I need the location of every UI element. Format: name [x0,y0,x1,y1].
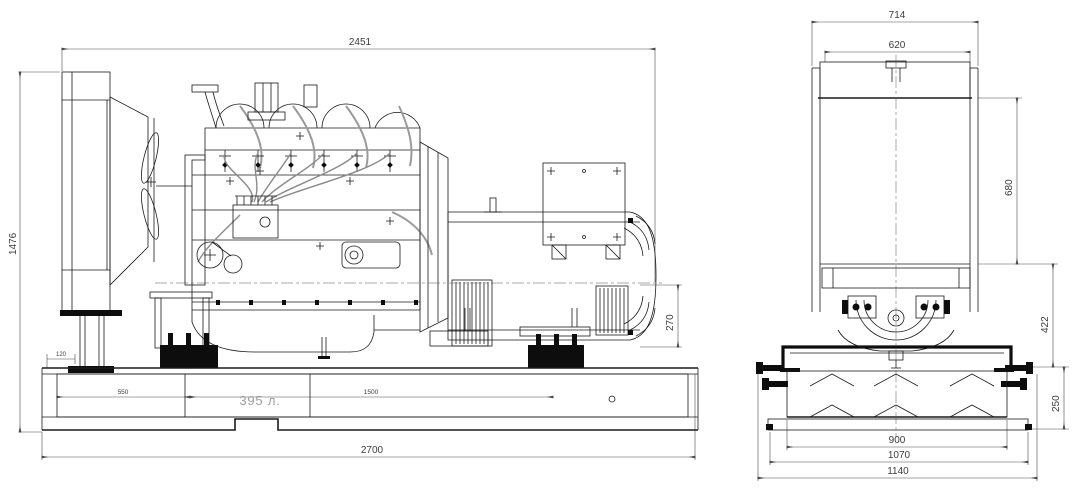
dim-rear-duct-height-label: 270 [665,314,676,331]
dim-core-height-label: 680 [1004,179,1015,196]
air-intake-stack [248,83,317,120]
alternator-mount [430,308,590,368]
tank-drain-port [609,396,615,402]
oil-pan [192,310,420,359]
lifting-lug [484,198,502,212]
injectors-row [219,150,396,172]
rear-air-scoops [624,216,655,336]
block-flange-bolts [216,300,418,305]
fuel-capacity-label: 395 л. [239,393,280,408]
radiator-foot-flange [60,310,122,316]
genset-dimension-drawing: 2451 1476 2700 270 120 550 1500 [0,0,1078,488]
exhaust-outlet-flange [192,85,218,92]
dim-tank-seg2-label: 1500 [364,389,379,396]
front-view: 714 620 680 422 250 900 1070 [756,10,1069,481]
side-view-dimensions: 2451 1476 2700 270 120 550 1500 [8,37,695,460]
dim-overall-length-label: 2451 [349,37,372,48]
front-vent-grille [452,280,492,346]
cooling-fan [138,118,192,262]
dim-base-width-label: 1140 [887,466,909,477]
base-bottom-edge [42,419,698,430]
terminal-box [543,163,625,259]
anchor-bolts [756,362,1033,390]
alternator-side [430,163,656,368]
radiator-leg [68,316,114,373]
base-frame-side: 395 л. [42,368,698,430]
radiator-front [812,61,978,312]
side-view: 2451 1476 2700 270 120 550 1500 [8,37,698,460]
dim-radiator-width-label: 620 [889,40,906,51]
dim-base-tank-height-label: 250 [1051,395,1062,412]
dim-base-length-label: 2700 [361,445,384,456]
dim-overall-width-label: 714 [889,10,906,21]
radiator-top-tank [820,62,970,98]
fuel-tank-front [787,371,1007,417]
starter-motor [342,242,400,268]
front-view-dimensions: 714 620 680 422 250 900 1070 [758,10,1069,481]
dim-tank-width-label: 900 [889,435,906,446]
fuel-injection-pump [233,196,278,238]
bottom-plate-front [766,419,1032,430]
front-pulleys [197,242,242,273]
radiator-side [60,72,192,373]
dim-plate-width-label: 1070 [888,450,911,461]
dim-mid-height-label: 422 [1040,316,1051,333]
engine-side [150,83,432,368]
exhaust-manifold [192,85,420,168]
front-engine-mount [150,292,218,368]
dim-radiator-leg-offset-label: 120 [56,352,67,358]
dim-tank-seg1-label: 550 [118,389,129,396]
dim-overall-height-label: 1476 [8,232,19,255]
rear-vent-grille [596,286,628,335]
technical-drawing-page: 2451 1476 2700 270 120 550 1500 [0,0,1078,488]
